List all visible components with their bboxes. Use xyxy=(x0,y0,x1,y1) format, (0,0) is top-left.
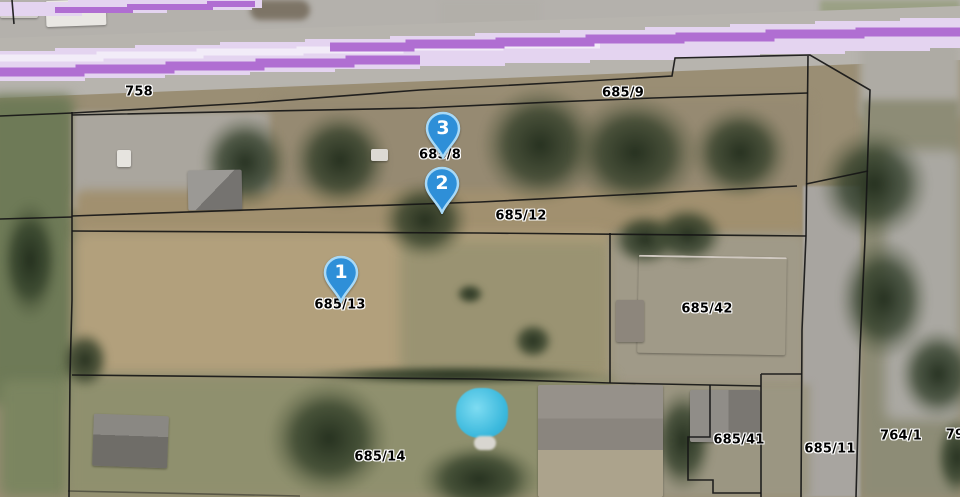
map-marker-3[interactable]: 3 xyxy=(425,111,461,159)
parcel-boundaries xyxy=(0,0,960,497)
map-canvas[interactable]: 758 685/9 685/8 685/12 685/13 685/42 685… xyxy=(0,0,960,497)
marker-number: 3 xyxy=(425,116,461,140)
map-marker-2[interactable]: 2 xyxy=(424,166,460,214)
map-marker-1[interactable]: 1 xyxy=(323,255,359,303)
marker-number: 2 xyxy=(424,171,460,195)
marker-number: 1 xyxy=(323,260,359,284)
